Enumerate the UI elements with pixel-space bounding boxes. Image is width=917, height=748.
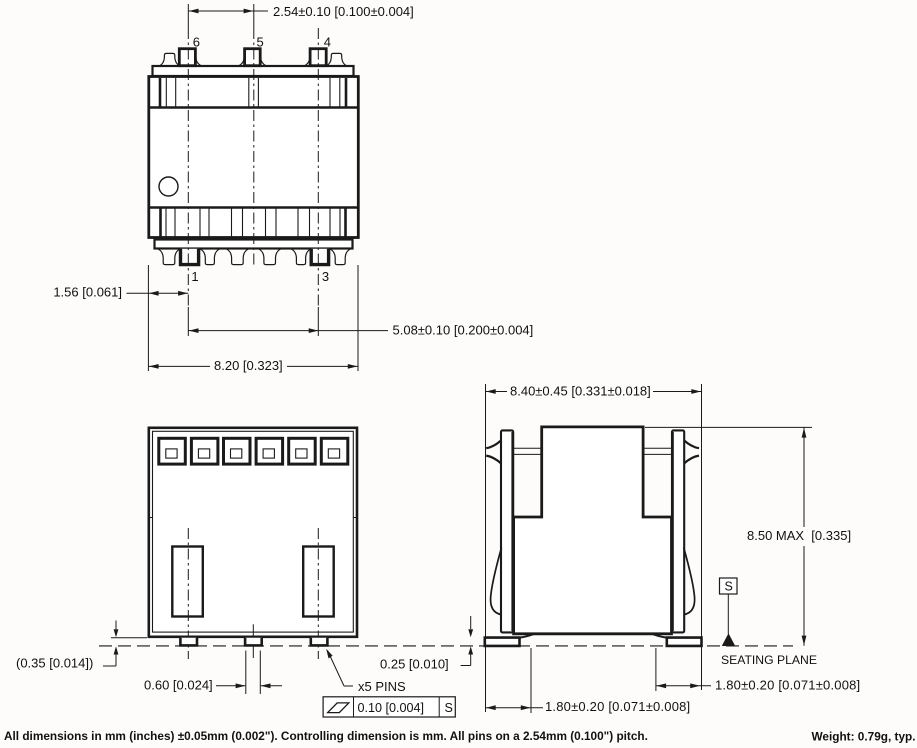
svg-text:Weight: 0.79g, typ.: Weight: 0.79g, typ. (811, 730, 915, 744)
svg-text:4: 4 (324, 35, 331, 50)
svg-text:8.40±0.45 [0.331±0.018]: 8.40±0.45 [0.331±0.018] (510, 384, 651, 399)
svg-text:2.54±0.10 [0.100±0.004]: 2.54±0.10 [0.100±0.004] (273, 4, 414, 19)
svg-text:0.25 [0.010]: 0.25 [0.010] (380, 656, 449, 671)
svg-text:1: 1 (191, 269, 198, 284)
svg-text:x5 PINS: x5 PINS (358, 679, 406, 694)
svg-text:SEATING PLANE: SEATING PLANE (721, 653, 817, 667)
svg-text:1.80±0.20 [0.071±0.008]: 1.80±0.20 [0.071±0.008] (715, 678, 860, 693)
svg-text:(0.35 [0.014]): (0.35 [0.014]) (16, 656, 93, 671)
svg-text:5.08±0.10 [0.200±0.004]: 5.08±0.10 [0.200±0.004] (393, 323, 534, 338)
svg-text:8.50 MAX [0.335]: 8.50 MAX [0.335] (747, 528, 851, 543)
svg-text:3: 3 (322, 269, 329, 284)
svg-text:8.20 [0.323]: 8.20 [0.323] (214, 358, 283, 373)
svg-text:6: 6 (193, 35, 200, 50)
svg-text:5: 5 (257, 35, 264, 50)
svg-text:1.56 [0.061]: 1.56 [0.061] (53, 285, 122, 300)
svg-text:S: S (445, 701, 453, 715)
svg-text:0.10 [0.004]: 0.10 [0.004] (358, 701, 425, 715)
svg-text:1.80±0.20 [0.071±0.008]: 1.80±0.20 [0.071±0.008] (545, 699, 690, 714)
svg-text:All dimensions in mm (inches): All dimensions in mm (inches) ±0.05mm (0… (4, 729, 648, 743)
svg-text:0.60 [0.024]: 0.60 [0.024] (144, 678, 213, 693)
svg-text:S: S (725, 580, 733, 594)
